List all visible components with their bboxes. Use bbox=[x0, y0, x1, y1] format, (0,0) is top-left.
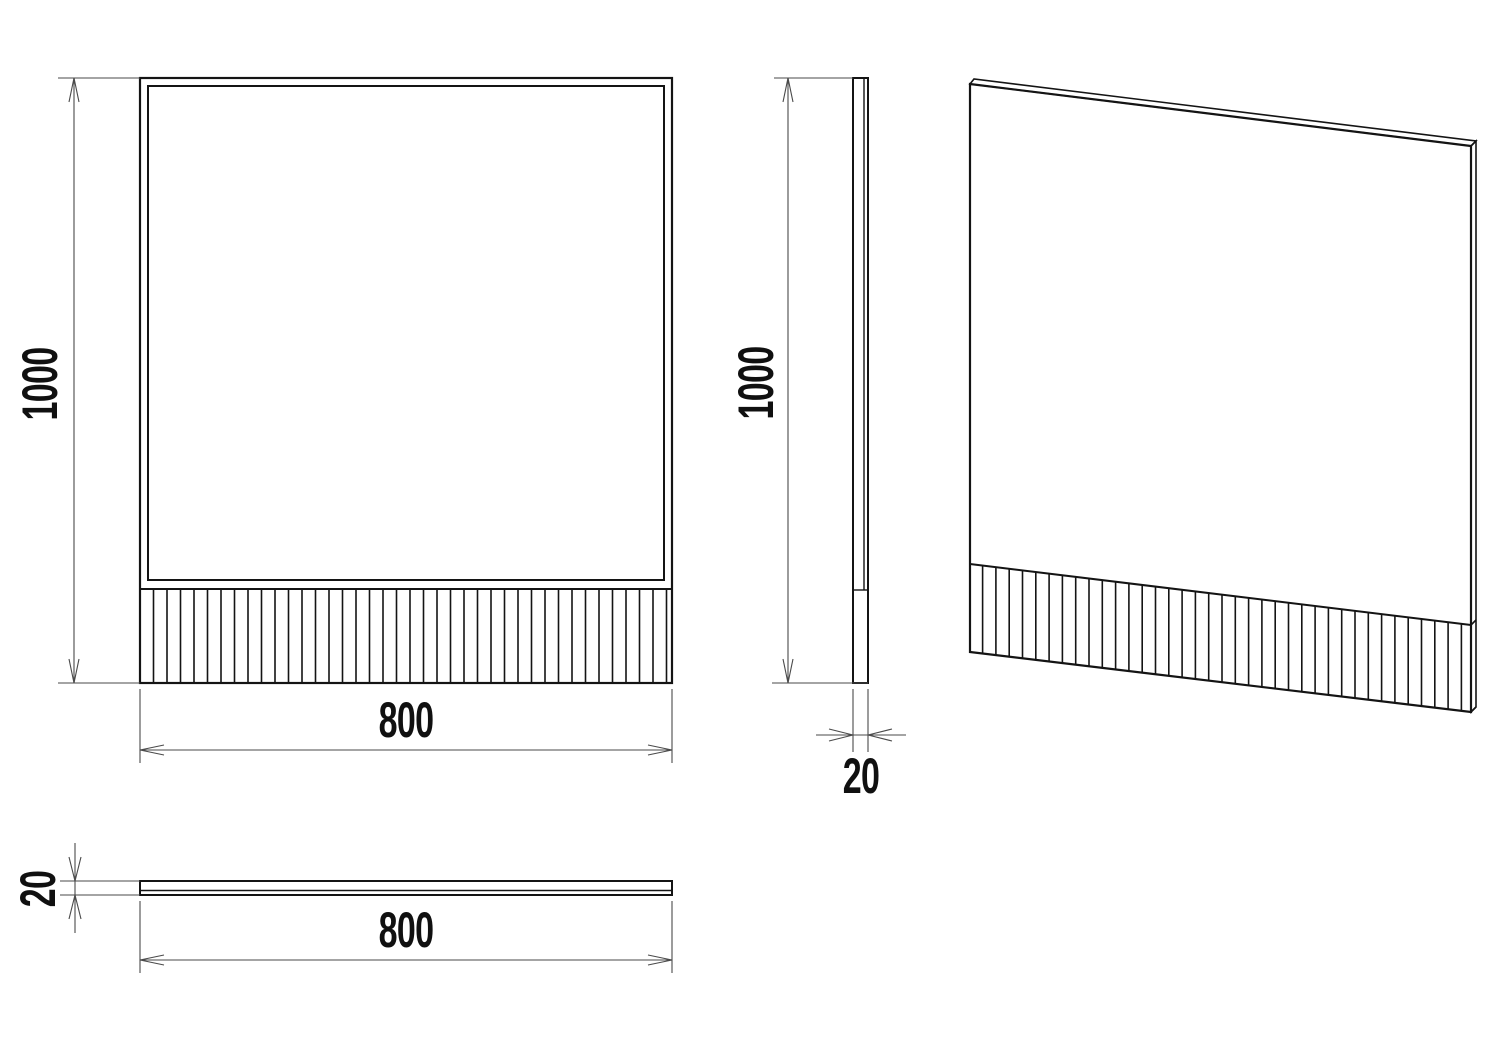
technical-drawing-canvas: 1000 800 1000 20 bbox=[0, 0, 1506, 1053]
front-height-dimension-label: 1000 bbox=[13, 347, 69, 420]
front-view bbox=[140, 78, 672, 683]
perspective-view bbox=[970, 79, 1476, 712]
top-view bbox=[140, 881, 672, 895]
side-panel-outline bbox=[853, 78, 868, 683]
technical-drawing-page: 1000 800 1000 20 bbox=[0, 0, 1506, 1053]
top-panel-outline bbox=[140, 881, 672, 895]
side-view bbox=[853, 78, 868, 683]
perspective-front-face bbox=[970, 84, 1471, 712]
top-thickness-dimension bbox=[60, 843, 140, 933]
front-width-dimension-label: 800 bbox=[379, 693, 434, 749]
perspective-flute-band-top-line bbox=[970, 564, 1471, 625]
side-thickness-dimension bbox=[816, 689, 906, 752]
perspective-right-edge-face bbox=[1471, 141, 1476, 712]
front-mirror-inner-frame bbox=[148, 86, 664, 580]
perspective-top-edge-face bbox=[970, 79, 1476, 146]
side-height-dimension-label: 1000 bbox=[729, 346, 785, 419]
top-thickness-dimension-label: 20 bbox=[11, 871, 67, 908]
front-height-dimension bbox=[58, 78, 140, 683]
top-width-dimension-label: 800 bbox=[379, 903, 434, 959]
front-panel-outline bbox=[140, 78, 672, 683]
perspective-flute-band-stripes bbox=[983, 566, 1462, 711]
side-thickness-dimension-label: 20 bbox=[843, 749, 880, 805]
front-flute-band-stripes bbox=[154, 589, 667, 683]
